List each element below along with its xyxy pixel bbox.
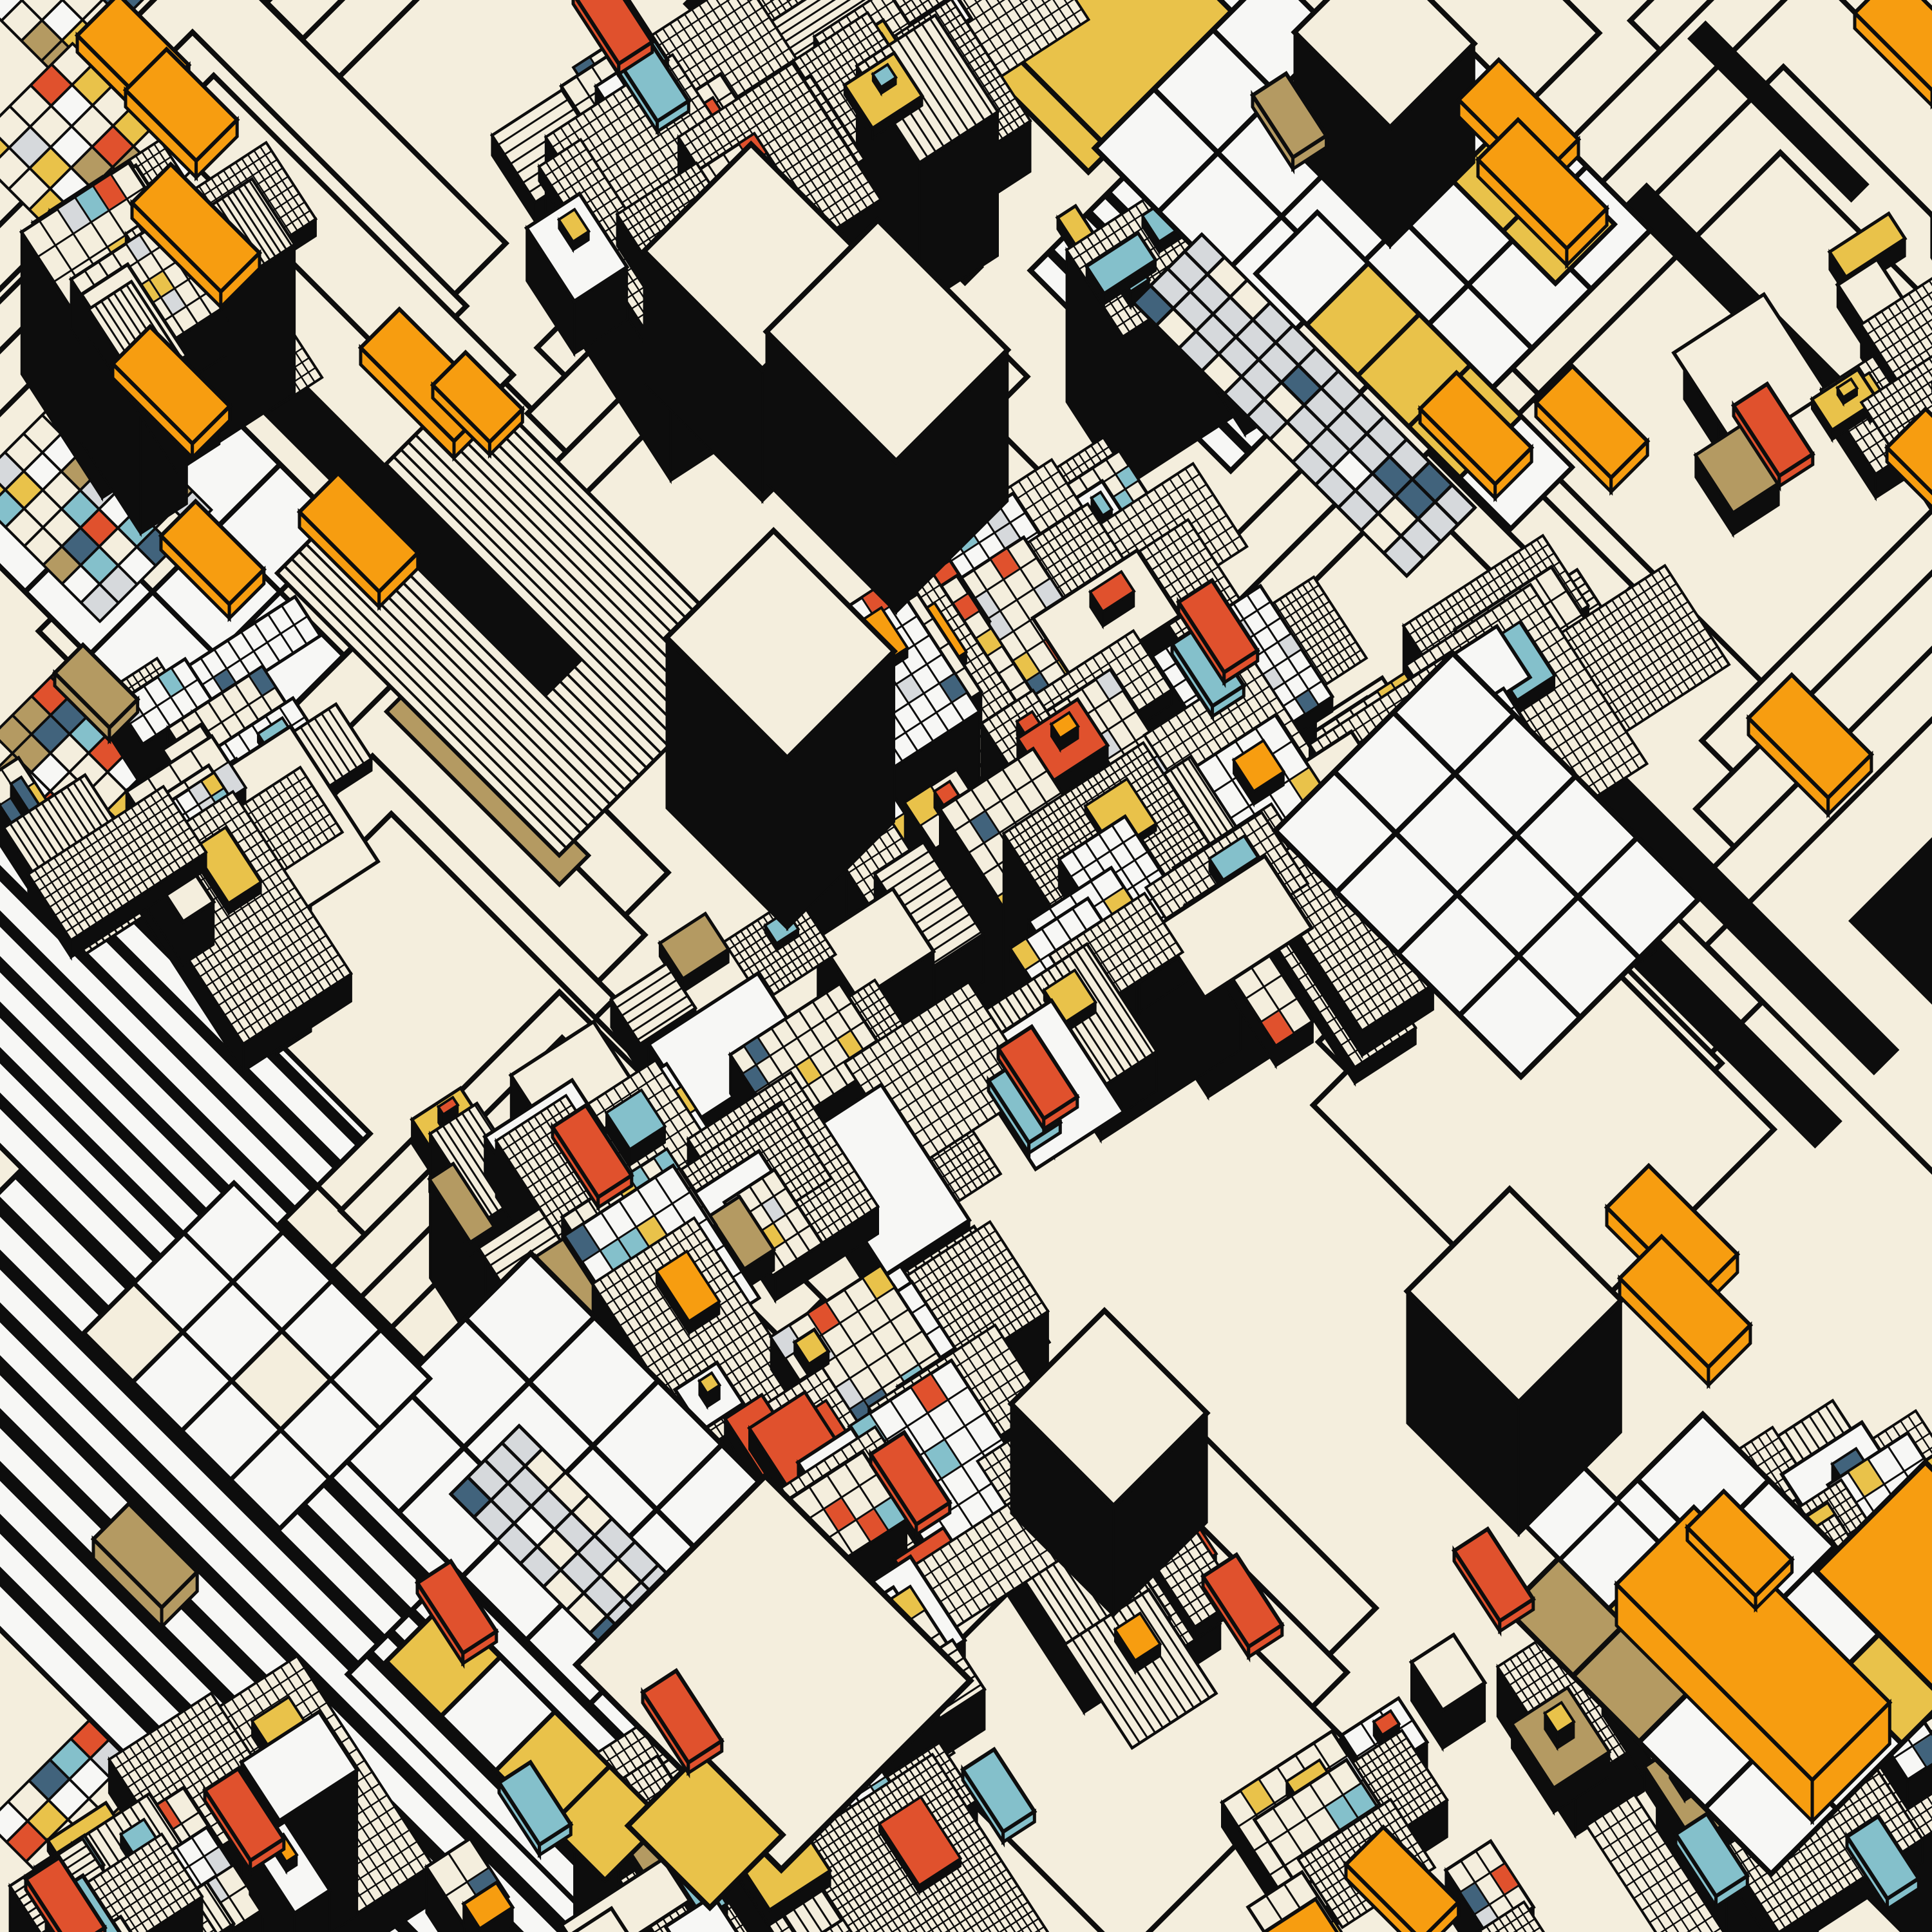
artwork-canvas xyxy=(0,0,1932,1932)
generative-artwork xyxy=(0,0,1932,1932)
artwork-shapes xyxy=(0,0,1932,1932)
